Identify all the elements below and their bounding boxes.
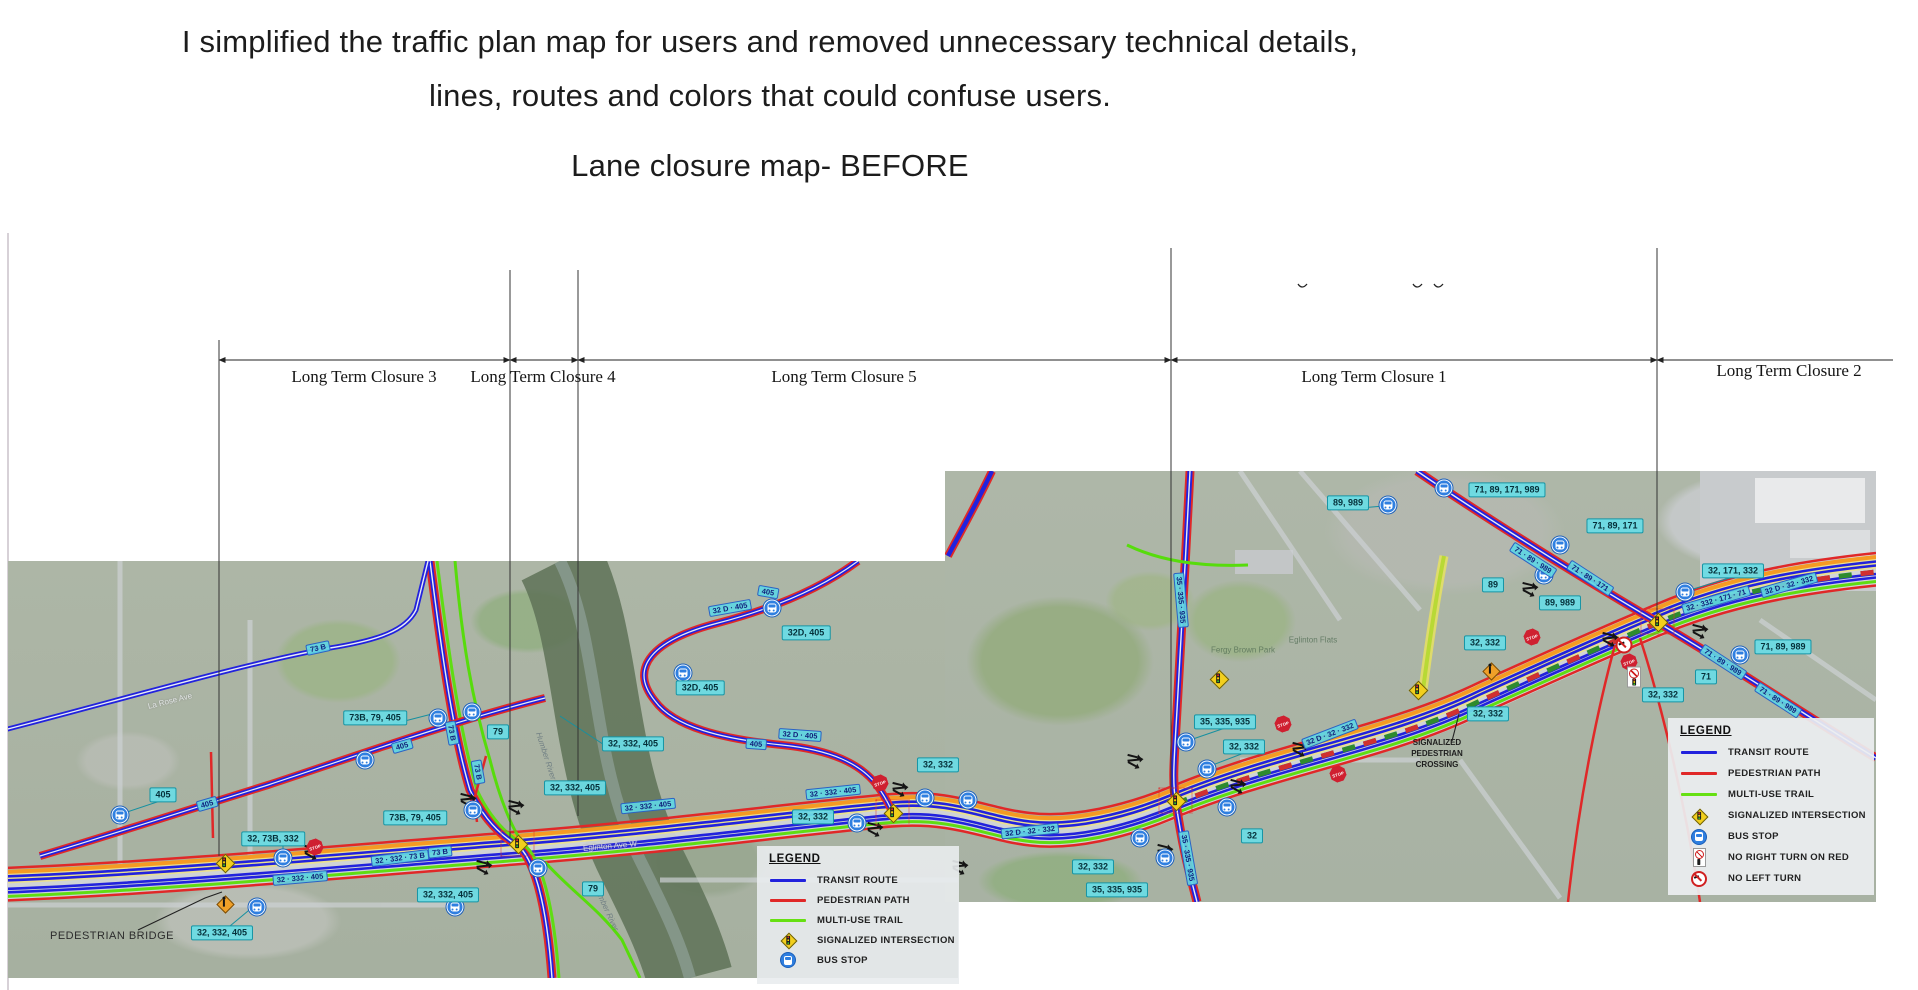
legend-item: MULTI-USE TRAIL (769, 910, 947, 930)
bus-stop-icon (675, 665, 692, 682)
route-label-box: 79 (582, 881, 604, 896)
pedestrian-crossing-icon (1483, 663, 1497, 677)
bus-stop-icon (530, 860, 547, 877)
turn-arrows-icon (509, 798, 524, 814)
signalized-intersection-icon (1410, 682, 1425, 697)
closure-label: Long Term Closure 3 (291, 367, 436, 387)
legend-item: NO RIGHT TURN ON RED (1680, 847, 1862, 868)
legend-item: BUS STOP (769, 950, 947, 970)
route-line-badge: 405 (745, 738, 766, 750)
route-label-box: 71, 89, 171, 989 (1468, 482, 1545, 497)
legend-swatch (1693, 848, 1706, 867)
bus-stop-icon (1178, 734, 1195, 751)
legend-item-label: PEDESTRIAN PATH (1728, 768, 1821, 779)
route-label-box: 405 (149, 787, 176, 802)
bus-stop-icon (1132, 830, 1149, 847)
route-label-box: 71, 89, 171 (1586, 518, 1643, 533)
legend-item-label: BUS STOP (817, 955, 868, 966)
route-label-box: 89, 989 (1539, 595, 1581, 610)
signalized-intersection-icon (510, 836, 525, 851)
legend-item: TRANSIT ROUTE (769, 870, 947, 890)
cropped-text-descenders (1298, 284, 1443, 287)
legend-swatch (781, 953, 795, 967)
signalized-pedestrian-crossing-label: SIGNALIZED PEDESTRIAN CROSSING (1397, 738, 1477, 770)
bus-stop-icon (1732, 647, 1749, 664)
route-label-box: 32, 332, 405 (191, 925, 253, 940)
bus-stop-icon (275, 850, 292, 867)
legend-swatch (770, 879, 806, 882)
legend-title: LEGEND (1680, 725, 1862, 737)
legend-item: TRANSIT ROUTE (1680, 742, 1862, 763)
legend-swatch (770, 899, 806, 902)
bus-stop-icon (1219, 799, 1236, 816)
signalized-intersection-icon (885, 805, 900, 820)
no-right-turn-on-red-icon (1627, 667, 1641, 688)
legend-item-label: NO RIGHT TURN ON RED (1728, 852, 1849, 863)
legend-box-right: LEGEND TRANSIT ROUTE PEDESTRIAN PATH MUL… (1668, 718, 1874, 895)
bus-stop-icon (357, 752, 374, 769)
closure-label: Long Term Closure 4 (470, 367, 615, 387)
legend-swatch (1681, 793, 1717, 796)
route-label-box: 32, 332 (1467, 706, 1509, 721)
legend-item-label: MULTI-USE TRAIL (1728, 789, 1814, 800)
turn-arrows-icon (1128, 752, 1143, 768)
legend-item: SIGNALIZED INTERSECTION (1680, 805, 1862, 826)
legend-box-main: LEGEND TRANSIT ROUTE PEDESTRIAN PATH MUL… (757, 846, 959, 984)
bus-stop-icon (249, 899, 266, 916)
route-label-box: 35, 335, 935 (1086, 882, 1148, 897)
bus-stop-icon (849, 815, 866, 832)
legend-item-label: SIGNALIZED INTERSECTION (817, 935, 955, 946)
route-label-box: 32, 332 (792, 809, 834, 824)
bus-stop-icon (1552, 537, 1569, 554)
legend-item-label: TRANSIT ROUTE (1728, 747, 1809, 758)
legend-item: PEDESTRIAN PATH (1680, 763, 1862, 784)
bus-stop-icon (464, 704, 481, 721)
legend-item-label: MULTI-USE TRAIL (817, 915, 903, 926)
legend-item-label: PEDESTRIAN PATH (817, 895, 910, 906)
legend-item-label: NO LEFT TURN (1728, 873, 1801, 884)
legend-swatch (1693, 809, 1706, 822)
turn-arrows-icon (1523, 580, 1538, 596)
signalized-intersection-icon (1650, 614, 1665, 629)
legend-swatch (1681, 772, 1717, 775)
route-label-box: 32, 171, 332 (1702, 563, 1764, 578)
signalized-intersection-icon (217, 855, 232, 870)
route-label-box: 32, 332, 405 (544, 780, 606, 795)
legend-item-label: SIGNALIZED INTERSECTION (1728, 810, 1866, 821)
route-label-box: 73B, 79, 405 (383, 810, 447, 825)
route-label-box: 32, 332, 405 (417, 887, 479, 902)
legend-swatch (770, 919, 806, 922)
signalized-intersection-icon (1211, 671, 1226, 686)
faint-map-label: Fergy Brown Park (1211, 646, 1275, 655)
turn-arrows-icon (893, 780, 908, 796)
route-label-box: 32 (1241, 828, 1263, 843)
bus-stop-icon (764, 600, 781, 617)
bus-stop-icon (1380, 497, 1397, 514)
route-label-box: 32, 332 (1072, 859, 1114, 874)
legend-item-label: BUS STOP (1728, 831, 1779, 842)
legend-swatch (1681, 751, 1717, 754)
route-label-box: 32, 332, 405 (602, 736, 664, 751)
bus-stop-icon (465, 802, 482, 819)
route-label-box: 35, 335, 935 (1194, 714, 1256, 729)
route-label-box: 89 (1482, 577, 1504, 592)
turn-arrows-icon (477, 858, 492, 874)
slide: I simplified the traffic plan map for us… (0, 0, 1918, 990)
no-left-turn-icon (1616, 637, 1633, 654)
bus-stop-icon (917, 790, 934, 807)
legend-item: SIGNALIZED INTERSECTION (769, 930, 947, 950)
route-label-box: 32, 73B, 332 (241, 831, 305, 846)
closure-label: Long Term Closure 1 (1301, 367, 1446, 387)
turn-arrows-icon (1231, 777, 1246, 793)
bus-stop-icon (1436, 480, 1453, 497)
legend-swatch (1691, 871, 1707, 887)
route-label-box: 32D, 405 (782, 625, 831, 640)
bus-stop-icon (1157, 850, 1174, 867)
faint-map-label: Eglinton Flats (1289, 636, 1337, 645)
route-label-box: 71, 89, 989 (1754, 639, 1811, 654)
bus-stop-icon (960, 792, 977, 809)
closure-label: Long Term Closure 5 (771, 367, 916, 387)
legend-item: NO LEFT TURN (1680, 868, 1862, 889)
legend-item: PEDESTRIAN PATH (769, 890, 947, 910)
bus-stop-icon (1199, 761, 1216, 778)
pedestrian-bridge-label: PEDESTRIAN BRIDGE (42, 929, 182, 943)
legend-item-label: TRANSIT ROUTE (817, 875, 898, 886)
route-label-box: 71 (1695, 669, 1717, 684)
legend-item: BUS STOP (1680, 826, 1862, 847)
legend-title: LEGEND (769, 853, 947, 865)
pedestrian-crossing-icon (217, 896, 231, 910)
route-label-box: 89, 989 (1327, 495, 1369, 510)
route-label-box: 32, 332 (1642, 687, 1684, 702)
route-label-box: 32, 332 (1464, 635, 1506, 650)
turn-arrows-icon (1693, 622, 1708, 638)
bus-stop-icon (1677, 584, 1694, 601)
route-label-box: 73B, 79, 405 (343, 710, 407, 725)
legend-item: MULTI-USE TRAIL (1680, 784, 1862, 805)
signalized-intersection-icon (1168, 793, 1183, 808)
bus-stop-icon (112, 807, 129, 824)
route-label-box: 32D, 405 (676, 680, 725, 695)
legend-swatch (782, 934, 795, 947)
route-label-box: 32, 332 (1223, 739, 1265, 754)
route-label-box: 79 (487, 724, 509, 739)
closure-label: Long Term Closure 2 (1716, 361, 1861, 381)
legend-swatch (1692, 830, 1706, 844)
route-label-box: 32, 332 (917, 757, 959, 772)
